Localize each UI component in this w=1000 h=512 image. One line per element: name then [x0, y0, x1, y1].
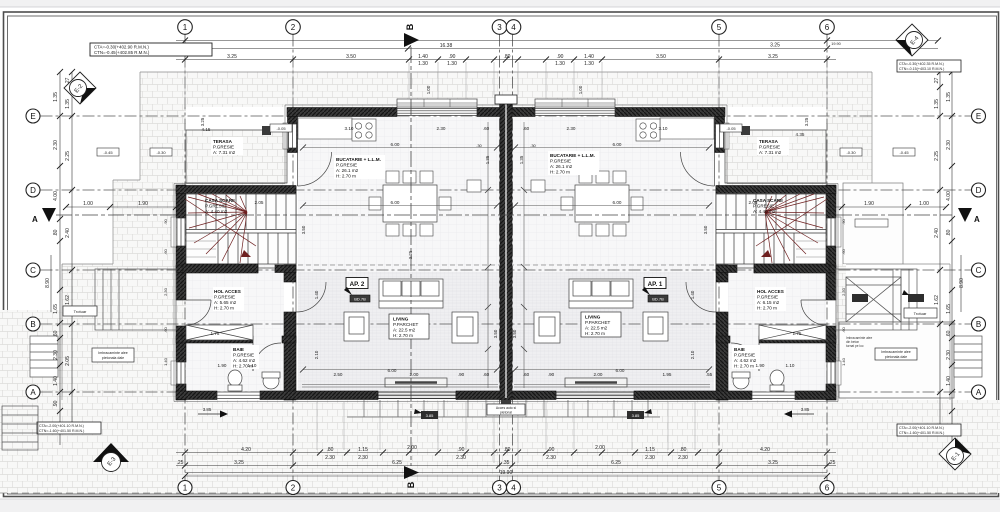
- svg-text:-0.30: -0.30: [156, 150, 166, 155]
- svg-text:.60: .60: [163, 326, 168, 332]
- svg-text:1.35: 1.35: [946, 92, 952, 102]
- svg-text:-0.45: -0.45: [899, 150, 909, 155]
- svg-text:A: 22.5 m2: A: 22.5 m2: [585, 326, 608, 331]
- svg-text:LIVING: LIVING: [393, 317, 409, 322]
- svg-text:3.25: 3.25: [200, 117, 205, 126]
- svg-text:.30: .30: [476, 143, 482, 148]
- svg-text:.90: .90: [458, 447, 465, 453]
- svg-text:H: 2.70 m: H: 2.70 m: [214, 306, 234, 311]
- svg-text:H: 2.70 m: H: 2.70 m: [550, 170, 570, 175]
- svg-text:2.00: 2.00: [594, 372, 603, 377]
- svg-text:3.10: 3.10: [345, 126, 354, 131]
- svg-text:3.25: 3.25: [770, 43, 780, 49]
- svg-text:4.00: 4.00: [946, 191, 952, 201]
- svg-text:6.00: 6.00: [613, 200, 622, 205]
- svg-text:2.25: 2.25: [934, 151, 940, 161]
- svg-text:P.GRESIE: P.GRESIE: [757, 295, 778, 300]
- svg-text:2.30: 2.30: [645, 455, 655, 461]
- svg-text:CTN=-1.60(+401.50 R.M.N.): CTN=-1.60(+401.50 R.M.N.): [39, 429, 84, 433]
- svg-text:6.00: 6.00: [616, 368, 625, 373]
- svg-text:8.90: 8.90: [959, 278, 965, 288]
- svg-text:1.35: 1.35: [53, 92, 59, 102]
- svg-text:1.15: 1.15: [645, 447, 655, 453]
- svg-text:P.GRESIE: P.GRESIE: [734, 353, 755, 358]
- svg-text:1.35: 1.35: [934, 99, 940, 109]
- svg-text:pietonala dale: pietonala dale: [102, 356, 124, 360]
- svg-text:1.62: 1.62: [934, 295, 940, 305]
- svg-text:.27: .27: [934, 77, 940, 84]
- svg-text:2.30: 2.30: [678, 455, 688, 461]
- svg-text:H: 2.70 m: H: 2.70 m: [585, 331, 605, 336]
- svg-text:1.65: 1.65: [946, 304, 952, 314]
- svg-text:6: 6: [825, 23, 830, 32]
- svg-text:A: 26.1 m2: A: 26.1 m2: [550, 164, 573, 169]
- svg-text:2.00: 2.00: [595, 445, 605, 451]
- svg-text:3.10: 3.10: [659, 126, 668, 131]
- svg-text:CTA=-0.30(+402.90 R.M.N.): CTA=-0.30(+402.90 R.M.N.): [94, 45, 149, 50]
- svg-text:.90: .90: [548, 372, 555, 377]
- svg-text:16.38: 16.38: [440, 43, 453, 49]
- svg-text:.55: .55: [706, 372, 713, 377]
- svg-text:2.05: 2.05: [749, 200, 758, 205]
- svg-text:3.25: 3.25: [804, 117, 809, 126]
- svg-text:4: 4: [511, 484, 516, 493]
- svg-text:6.25: 6.25: [392, 460, 402, 466]
- svg-text:Imbracaminte alee: Imbracaminte alee: [881, 350, 911, 354]
- svg-text:Acces auto si: Acces auto si: [496, 406, 516, 410]
- svg-text:pietonal: pietonal: [500, 411, 512, 415]
- svg-text:BAIE: BAIE: [233, 347, 244, 352]
- svg-text:A: 22.5 m2: A: 22.5 m2: [393, 328, 416, 333]
- svg-text:P.GRESIE: P.GRESIE: [759, 145, 780, 150]
- svg-text:3.50: 3.50: [656, 54, 666, 60]
- svg-text:CTN=-0.15(+403.10 R.M.N.): CTN=-0.15(+403.10 R.M.N.): [899, 67, 944, 71]
- svg-text:19.90: 19.90: [831, 42, 841, 46]
- svg-text:3.50: 3.50: [512, 329, 517, 338]
- svg-text:3.85: 3.85: [632, 413, 641, 418]
- svg-text:1.30: 1.30: [555, 61, 565, 67]
- svg-text:3.50: 3.50: [346, 54, 356, 60]
- svg-text:P.GRESIE: P.GRESIE: [233, 353, 254, 358]
- svg-text:2.30: 2.30: [946, 140, 952, 150]
- svg-text:B: B: [405, 23, 415, 30]
- svg-text:CTA=-2.00(+401.10 R.M.N.): CTA=-2.00(+401.10 R.M.N.): [39, 424, 84, 428]
- svg-text:TERASA: TERASA: [213, 139, 233, 144]
- svg-text:19.90: 19.90: [500, 470, 513, 476]
- svg-text:2.30: 2.30: [456, 455, 466, 461]
- svg-text:3.50: 3.50: [301, 225, 306, 234]
- svg-text:2: 2: [291, 484, 296, 493]
- svg-text:D: D: [30, 186, 36, 195]
- svg-text:3: 3: [497, 484, 502, 493]
- svg-text:A: 7.31 m2: A: 7.31 m2: [759, 150, 782, 155]
- svg-text:P.GRESIE: P.GRESIE: [214, 295, 235, 300]
- svg-text:1.40: 1.40: [584, 54, 594, 60]
- svg-text:1.90: 1.90: [218, 363, 227, 368]
- svg-text:3.25: 3.25: [227, 54, 237, 60]
- svg-text:2.00: 2.00: [407, 445, 417, 451]
- svg-text:H: 2.70 m: H: 2.70 m: [393, 333, 413, 338]
- svg-text:6.25: 6.25: [611, 460, 621, 466]
- svg-text:P.GRESIE: P.GRESIE: [550, 159, 571, 164]
- svg-text:B: B: [406, 481, 416, 488]
- svg-text:4: 4: [511, 23, 516, 32]
- svg-text:1.40: 1.40: [841, 357, 846, 366]
- svg-text:P.GRESIE: P.GRESIE: [213, 145, 234, 150]
- svg-text:.60: .60: [946, 330, 952, 337]
- svg-text:P.PARCHET: P.PARCHET: [393, 322, 419, 327]
- svg-text:.60: .60: [483, 126, 490, 131]
- svg-text:2.05: 2.05: [255, 200, 264, 205]
- svg-text:6: 6: [825, 484, 830, 493]
- svg-text:1.62: 1.62: [65, 295, 71, 305]
- svg-text:A: A: [32, 215, 38, 224]
- svg-text:1.90: 1.90: [138, 201, 148, 207]
- svg-text:.25: .25: [829, 460, 836, 466]
- svg-text:1.30: 1.30: [447, 61, 457, 67]
- svg-text:B: B: [30, 320, 35, 329]
- svg-text:.60: .60: [841, 326, 846, 332]
- svg-text:1.30: 1.30: [584, 61, 594, 67]
- svg-text:H: 2.70 m: H: 2.70 m: [757, 306, 777, 311]
- svg-text:CTA=-2.00(+401.10 R.M.N.): CTA=-2.00(+401.10 R.M.N.): [899, 426, 944, 430]
- svg-text:C: C: [30, 266, 36, 275]
- svg-text:P.GRESIE: P.GRESIE: [205, 204, 226, 209]
- svg-text:2.30: 2.30: [437, 126, 446, 131]
- svg-text:1.90: 1.90: [864, 201, 874, 207]
- svg-text:6.00: 6.00: [391, 142, 400, 147]
- svg-text:1.75: 1.75: [793, 331, 802, 336]
- svg-text:LIVING: LIVING: [585, 315, 601, 320]
- svg-text:2.30: 2.30: [325, 455, 335, 461]
- svg-text:3: 3: [497, 23, 502, 32]
- svg-text:.90: .90: [53, 400, 59, 407]
- svg-text:2: 2: [291, 23, 296, 32]
- svg-text:.30: .30: [530, 143, 536, 148]
- svg-text:H: 2.70 m: H: 2.70 m: [336, 174, 356, 179]
- svg-text:4.20: 4.20: [241, 447, 251, 453]
- svg-text:1.40: 1.40: [53, 376, 59, 386]
- svg-text:H: 2.70 m: H: 2.70 m: [734, 364, 754, 369]
- svg-text:-0.05: -0.05: [726, 126, 736, 131]
- svg-text:2.30: 2.30: [358, 455, 368, 461]
- svg-text:6.00: 6.00: [613, 142, 622, 147]
- svg-text:BD.7B: BD.7B: [652, 297, 664, 302]
- svg-text:A: 7.31 m2: A: 7.31 m2: [213, 150, 236, 155]
- svg-text:3.25: 3.25: [408, 250, 413, 259]
- svg-text:1.40: 1.40: [314, 290, 319, 299]
- svg-text:.60: .60: [841, 248, 846, 254]
- svg-text:A: A: [976, 388, 982, 397]
- svg-text:1.75: 1.75: [211, 331, 220, 336]
- svg-text:BAIE: BAIE: [734, 347, 745, 352]
- svg-text:.80: .80: [53, 229, 59, 236]
- svg-text:2.40: 2.40: [65, 228, 71, 238]
- svg-text:.90: .90: [449, 54, 456, 60]
- svg-text:.60: .60: [483, 372, 490, 377]
- svg-text:8.90: 8.90: [45, 278, 51, 288]
- svg-text:.90: .90: [458, 372, 465, 377]
- svg-text:A: 4.40 m2: A: 4.40 m2: [753, 209, 776, 214]
- svg-text:1.35: 1.35: [485, 155, 490, 164]
- svg-text:3.85: 3.85: [426, 413, 435, 418]
- svg-text:-0.30: -0.30: [846, 150, 856, 155]
- svg-text:2.30: 2.30: [53, 350, 59, 360]
- svg-text:CASA SCARII: CASA SCARII: [205, 198, 235, 203]
- svg-text:-0.45: -0.45: [103, 150, 113, 155]
- svg-text:1.65: 1.65: [53, 304, 59, 314]
- svg-text:4.20: 4.20: [760, 447, 770, 453]
- svg-text:A: 5.65 m2: A: 5.65 m2: [214, 300, 237, 305]
- svg-text:1.00: 1.00: [83, 201, 93, 207]
- svg-text:1.00: 1.00: [426, 85, 431, 94]
- svg-text:3.25: 3.25: [234, 460, 244, 466]
- svg-text:BUCATARIE + L.L.M.: BUCATARIE + L.L.M.: [550, 153, 595, 158]
- svg-text:5: 5: [717, 484, 722, 493]
- svg-text:AP. 2: AP. 2: [350, 281, 365, 288]
- svg-text:6.00: 6.00: [388, 368, 397, 373]
- svg-text:3.50: 3.50: [703, 225, 708, 234]
- svg-text:1.40: 1.40: [418, 54, 428, 60]
- svg-text:.80: .80: [327, 447, 334, 453]
- svg-text:4.15: 4.15: [202, 127, 211, 132]
- svg-text:3.25: 3.25: [768, 460, 778, 466]
- svg-text:turnat pe loc: turnat pe loc: [846, 344, 864, 348]
- svg-text:4.35: 4.35: [796, 132, 805, 137]
- svg-text:A: 26.1 m2: A: 26.1 m2: [336, 168, 359, 173]
- svg-text:2.00: 2.00: [410, 372, 419, 377]
- svg-text:3.25: 3.25: [768, 54, 778, 60]
- svg-text:1.40: 1.40: [946, 376, 952, 386]
- svg-text:A: A: [974, 215, 980, 224]
- svg-text:BUCATARIE + L.L.M.: BUCATARIE + L.L.M.: [336, 157, 381, 162]
- svg-text:Imbracaminte alee: Imbracaminte alee: [98, 351, 128, 355]
- svg-text:1.10: 1.10: [786, 363, 795, 368]
- svg-text:P.PARCHET: P.PARCHET: [585, 320, 611, 325]
- svg-text:2.30: 2.30: [163, 287, 168, 296]
- svg-text:3.85: 3.85: [801, 407, 810, 412]
- svg-text:.80: .80: [680, 447, 687, 453]
- svg-text:Trotuar: Trotuar: [914, 311, 927, 316]
- svg-text:.60: .60: [523, 372, 530, 377]
- svg-text:TERASA: TERASA: [759, 139, 779, 144]
- svg-text:P.GRESIE: P.GRESIE: [336, 163, 357, 168]
- svg-text:1.40: 1.40: [690, 290, 695, 299]
- svg-text:.90: .90: [163, 218, 168, 224]
- svg-text:E: E: [30, 112, 35, 121]
- svg-text:E: E: [976, 112, 981, 121]
- svg-text:2.10: 2.10: [690, 350, 695, 359]
- svg-text:2.40: 2.40: [934, 228, 940, 238]
- svg-text:1.10: 1.10: [248, 363, 257, 368]
- svg-text:CTN=-0.45(+402.85 R.M.N.): CTN=-0.45(+402.85 R.M.N.): [94, 50, 150, 55]
- svg-text:A: 6.15 m2: A: 6.15 m2: [757, 300, 780, 305]
- svg-text:1: 1: [183, 23, 188, 32]
- svg-text:.80: .80: [946, 229, 952, 236]
- svg-text:2.05: 2.05: [65, 356, 71, 366]
- svg-text:Trotuar: Trotuar: [74, 309, 87, 314]
- svg-text:2.30: 2.30: [841, 287, 846, 296]
- svg-text:5: 5: [717, 23, 722, 32]
- svg-text:3.85: 3.85: [203, 407, 212, 412]
- svg-text:1.40: 1.40: [163, 357, 168, 366]
- svg-text:.60: .60: [53, 330, 59, 337]
- svg-text:1.35: 1.35: [519, 155, 524, 164]
- svg-text:C: C: [976, 266, 982, 275]
- svg-text:A: A: [30, 388, 36, 397]
- svg-text:1.00: 1.00: [919, 201, 929, 207]
- svg-text:.90: .90: [557, 54, 564, 60]
- svg-text:HOL ACCES: HOL ACCES: [757, 289, 784, 294]
- svg-text:.90: .90: [548, 447, 555, 453]
- svg-text:A: 4.40 m2: A: 4.40 m2: [205, 209, 228, 214]
- svg-text:1.90: 1.90: [756, 363, 765, 368]
- svg-text:.60: .60: [163, 248, 168, 254]
- svg-text:1: 1: [183, 484, 188, 493]
- svg-text:2.30: 2.30: [946, 350, 952, 360]
- svg-text:2.30: 2.30: [53, 140, 59, 150]
- svg-text:HOL ACCES: HOL ACCES: [214, 289, 241, 294]
- svg-text:1.15: 1.15: [358, 447, 368, 453]
- svg-text:2.10: 2.10: [314, 350, 319, 359]
- svg-text:CTA=-0.30(+402.35 R.M.N.): CTA=-0.30(+402.35 R.M.N.): [899, 62, 944, 66]
- svg-text:D: D: [976, 186, 982, 195]
- svg-text:AP. 1: AP. 1: [648, 281, 663, 288]
- svg-text:.90: .90: [841, 218, 846, 224]
- svg-text:2.25: 2.25: [65, 151, 71, 161]
- svg-text:BD.7B: BD.7B: [354, 297, 366, 302]
- svg-text:3.50: 3.50: [493, 329, 498, 338]
- svg-text:.25: .25: [177, 460, 184, 466]
- svg-text:B: B: [976, 320, 981, 329]
- svg-text:-0.05: -0.05: [276, 126, 286, 131]
- svg-text:A: 4.62 m2: A: 4.62 m2: [734, 358, 757, 363]
- svg-text:.35: .35: [503, 460, 510, 466]
- svg-text:.80: .80: [504, 54, 511, 60]
- svg-text:2.50: 2.50: [334, 372, 343, 377]
- svg-text:pietonala dale: pietonala dale: [885, 355, 907, 359]
- svg-text:1.95: 1.95: [663, 372, 672, 377]
- svg-text:1.00: 1.00: [578, 85, 583, 94]
- svg-text:CTN=-1.60(+401.50 R.M.N.): CTN=-1.60(+401.50 R.M.N.): [899, 431, 944, 435]
- svg-text:1.35: 1.35: [65, 99, 71, 109]
- svg-text:2.30: 2.30: [546, 455, 556, 461]
- svg-text:4.00: 4.00: [53, 191, 59, 201]
- svg-text:2.30: 2.30: [567, 126, 576, 131]
- svg-text:1.30: 1.30: [418, 61, 428, 67]
- svg-text:.60: .60: [523, 126, 530, 131]
- svg-text:6.00: 6.00: [391, 200, 400, 205]
- svg-text:.80: .80: [504, 447, 511, 453]
